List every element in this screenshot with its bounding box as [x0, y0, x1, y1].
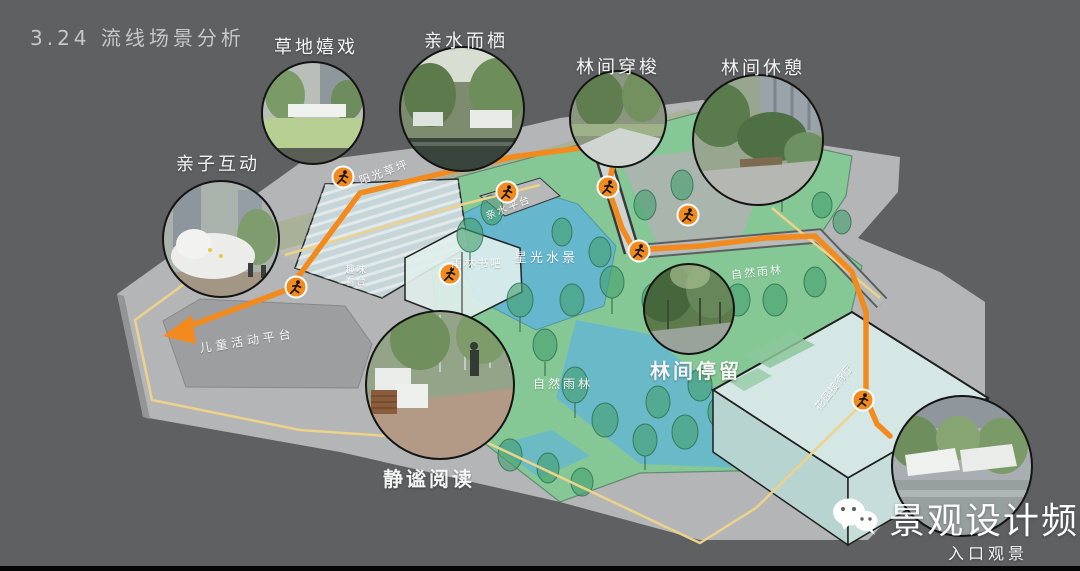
scene-label-waterside-rest: 亲水而栖	[396, 27, 536, 53]
page-title: 3.24 流线场景分析	[30, 22, 245, 51]
watermark-channel-name: 景观设计频道	[889, 492, 1080, 544]
plan-label-rainforest-bookbar: 雨林书吧	[437, 255, 517, 271]
runner-icon	[629, 241, 650, 262]
wechat-icon	[830, 495, 880, 541]
scene-label-quiet-reading: 静谧阅读	[359, 463, 499, 492]
runner-icon	[678, 205, 699, 226]
runner-icon	[598, 177, 619, 198]
runner-icon	[286, 277, 307, 298]
plan-label-fun-stand: 趣味看台	[342, 265, 370, 289]
photo-parent-child	[163, 181, 279, 297]
scene-label-forest-shuttle: 林间穿梭	[548, 53, 688, 79]
photo-forest-shuttle	[570, 70, 666, 167]
site-plan-canvas	[0, 0, 1080, 571]
scene-label-grass-play: 草地嬉戏	[246, 33, 386, 59]
bottom-bar	[0, 566, 1080, 571]
scene-label-forest-stay: 林间停留	[626, 355, 766, 384]
watermark: 景观设计频道	[830, 492, 1080, 544]
scene-label-parent-child: 亲子互动	[148, 150, 288, 176]
plan-label-starlight-water: 星光水景	[506, 247, 586, 266]
plan-label-natural-rainforest-1: 自然雨林	[523, 375, 603, 392]
slide: 3.24 流线场景分析 草地嬉戏 亲水而栖 林间穿梭 林间休憩 亲子互动 静谧阅…	[0, 0, 1080, 571]
scene-label-forest-rest: 林间休憩	[693, 54, 833, 80]
runner-icon	[853, 390, 874, 411]
